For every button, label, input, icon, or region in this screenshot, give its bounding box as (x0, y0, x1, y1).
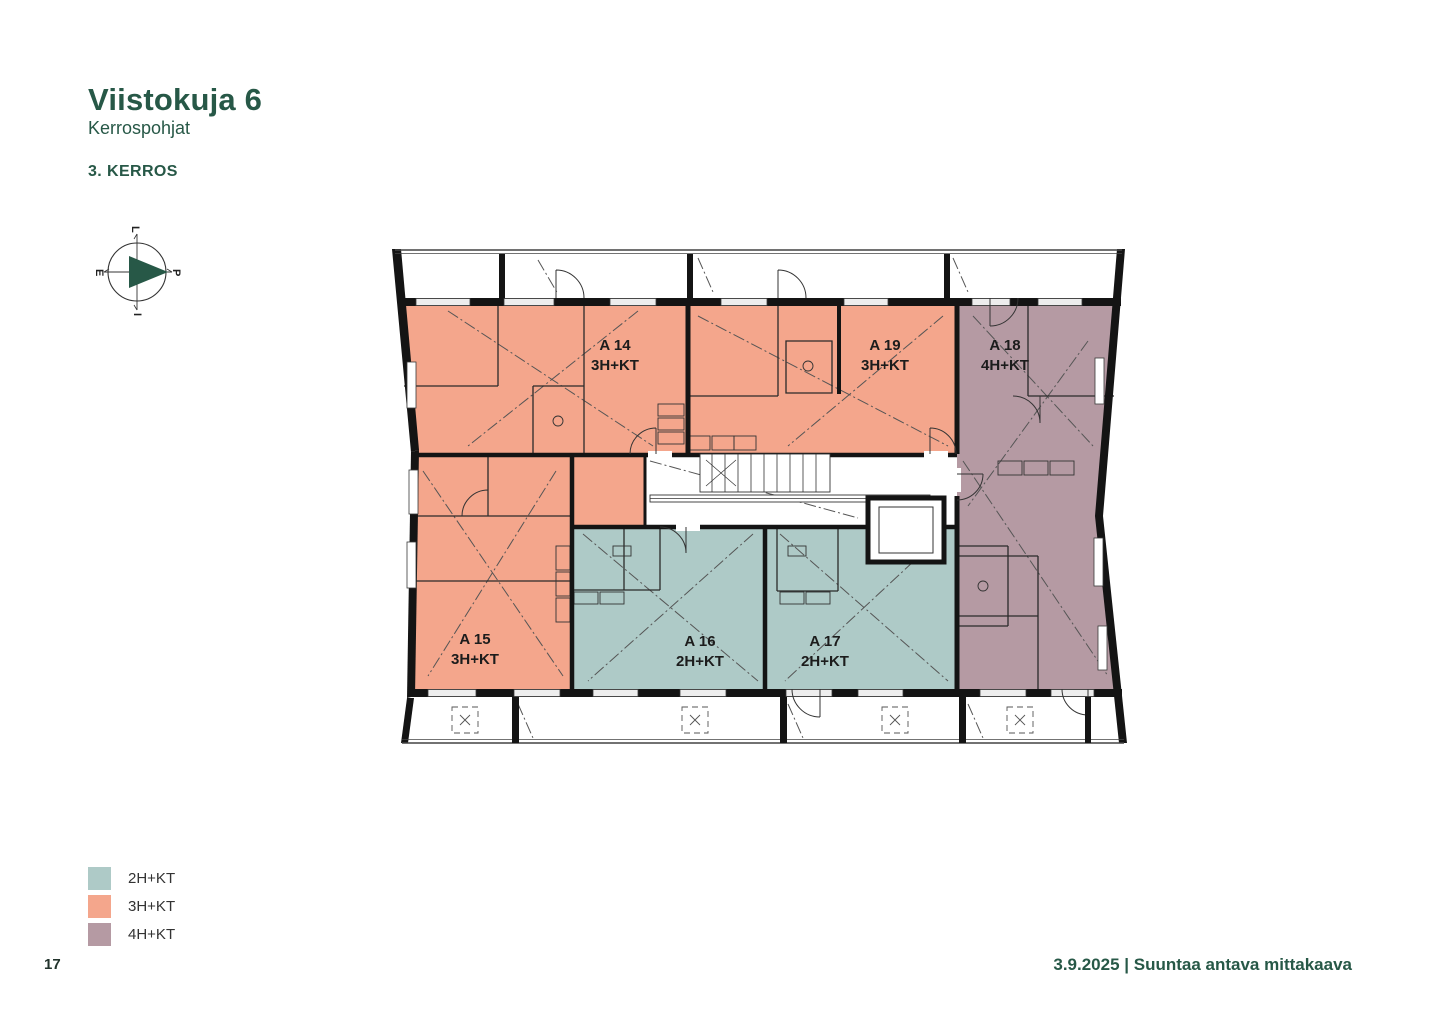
svg-text:3H+KT: 3H+KT (451, 651, 499, 668)
svg-text:A 17: A 17 (809, 633, 840, 650)
page-number: 17 (44, 956, 61, 973)
compass-letter-top: L (129, 226, 141, 233)
legend-item-4hkt: 4H+KT (88, 920, 175, 948)
svg-text:2H+KT: 2H+KT (676, 653, 724, 670)
compass-icon: L P I E (96, 222, 182, 322)
legend-item-2hkt: 2H+KT (88, 864, 175, 892)
elevator (868, 498, 944, 562)
compass-letter-bottom: I (131, 313, 143, 316)
svg-text:A 14: A 14 (599, 337, 631, 354)
legend-item-3hkt: 3H+KT (88, 892, 175, 920)
svg-text:A 15: A 15 (459, 631, 490, 648)
svg-text:3H+KT: 3H+KT (861, 357, 909, 374)
document-page: Viistokuja 6 Kerrospohjat 3. KERROS L P … (0, 0, 1440, 1018)
page-title: Viistokuja 6 (88, 82, 262, 118)
legend-label-2hkt: 2H+KT (128, 870, 175, 887)
legend-swatch-3hkt (88, 895, 111, 918)
svg-text:4H+KT: 4H+KT (981, 357, 1029, 374)
legend-swatch-2hkt (88, 867, 111, 890)
page-subtitle: Kerrospohjat (88, 118, 190, 139)
floor-plan: A 14 3H+KT A 19 3H+KT A 18 4H+KT A 15 3H… (388, 246, 1132, 748)
svg-text:A 18: A 18 (989, 337, 1020, 354)
legend-label-3hkt: 3H+KT (128, 898, 175, 915)
legend-label-4hkt: 4H+KT (128, 926, 175, 943)
svg-text:A 19: A 19 (869, 337, 900, 354)
footer-date-scale-note: 3.9.2025 | Suuntaa antava mittakaava (1053, 955, 1352, 975)
compass-letter-left: E (96, 269, 105, 276)
compass-north-arrow (129, 256, 168, 288)
svg-text:3H+KT: 3H+KT (591, 357, 639, 374)
svg-text:2H+KT: 2H+KT (801, 653, 849, 670)
floor-label: 3. KERROS (88, 163, 178, 181)
legend: 2H+KT 3H+KT 4H+KT (88, 864, 175, 948)
svg-text:A 16: A 16 (684, 633, 715, 650)
legend-swatch-4hkt (88, 923, 111, 946)
compass-letter-right: P (170, 269, 182, 276)
